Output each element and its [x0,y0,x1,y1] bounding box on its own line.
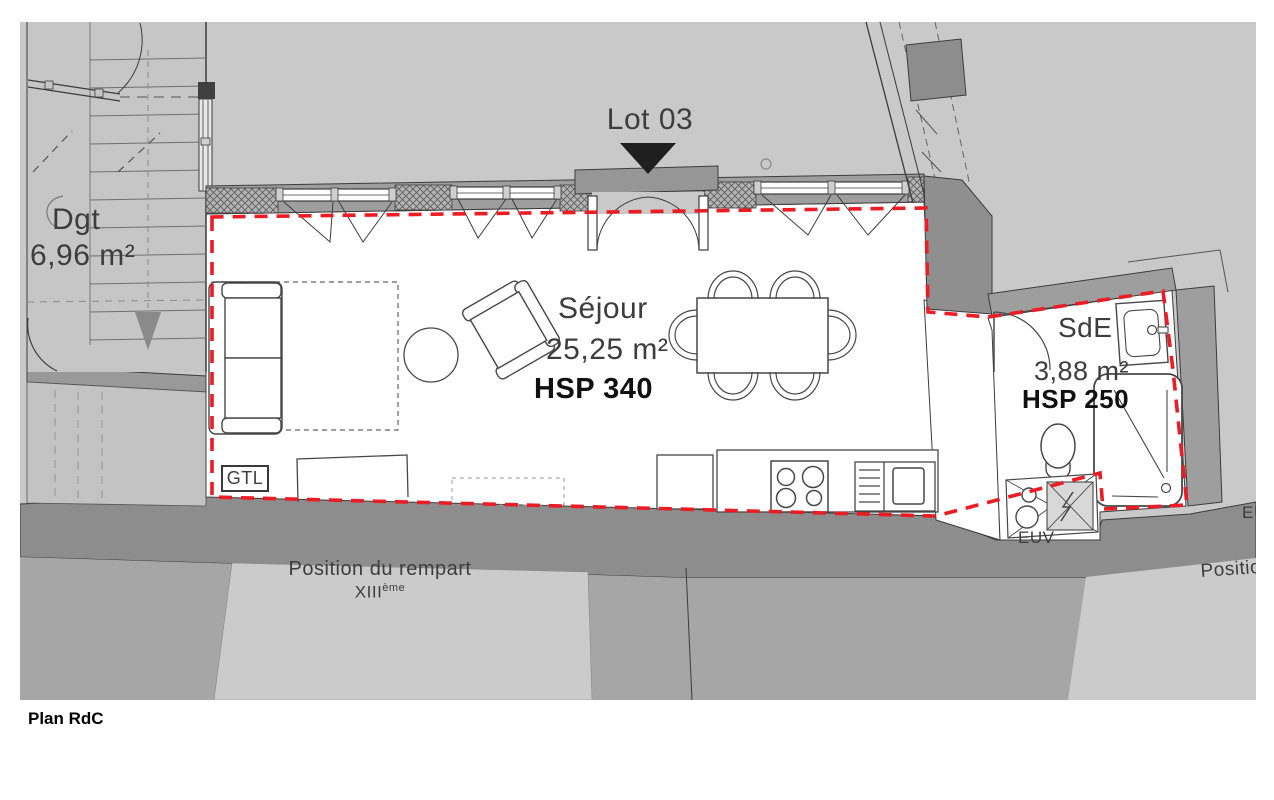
euv-label-edge: EUV [1242,504,1256,522]
gtl-label: GTL [227,468,264,489]
rampart-sup: ème [382,582,405,594]
kitchen-sink [855,462,935,511]
room-label-sde: SdE [1058,313,1112,342]
dining-table [697,298,828,373]
toilet [1041,424,1075,478]
kitchen-cabinet [657,455,713,509]
coffee-table [404,328,458,382]
stair-area [27,22,206,372]
cooktop [771,461,828,512]
rampart-roman: XIII [355,583,383,602]
survey-point-icon [761,159,771,169]
lot-label: Lot 03 [590,104,710,135]
room-area-sde: 3,88 m² [1034,357,1129,385]
page-title: Plan RdC [28,709,104,729]
wall-chunk-right [924,176,992,314]
plan-canvas: Lot 03 Dgt 6,96 m² Séjour 25,25 m² HSP 3… [20,22,1256,700]
room-area-sejour: 25,25 m² [546,334,668,365]
euv-label: EUV [1018,529,1054,547]
room-area-dgt: 6,96 m² [30,240,135,271]
room-label-dgt: Dgt [52,204,100,235]
staircase-dgt [27,22,206,372]
lower-light-area [27,382,206,506]
below-stair-area [27,366,206,506]
wall-hatch [395,185,452,210]
shower-drain-icon [1162,484,1171,493]
terrain-band [20,557,1256,700]
room-label-sejour: Séjour [558,293,648,324]
side-window-mullion [201,138,210,145]
floor-plan-page: Lot 03 Dgt 6,96 m² Séjour 25,25 m² HSP 3… [0,0,1274,800]
door-leaf [699,196,708,250]
room-height-sejour: HSP 340 [534,374,653,404]
window-mullion [45,81,53,89]
window-mullion [95,89,103,97]
sofa [209,282,282,434]
rampart-label-line2: XIIIème [260,583,500,601]
landing-slab [906,39,966,101]
wall-hatch [206,188,278,213]
room-height-sde: HSP 250 [1022,386,1129,413]
gtl-box: GTL [221,465,269,492]
wall-hatch [908,177,924,202]
rampart-label-line1: Position du rempart [260,559,500,580]
post [198,82,215,99]
door-leaf [588,196,597,250]
kitchen-counter [657,450,938,512]
